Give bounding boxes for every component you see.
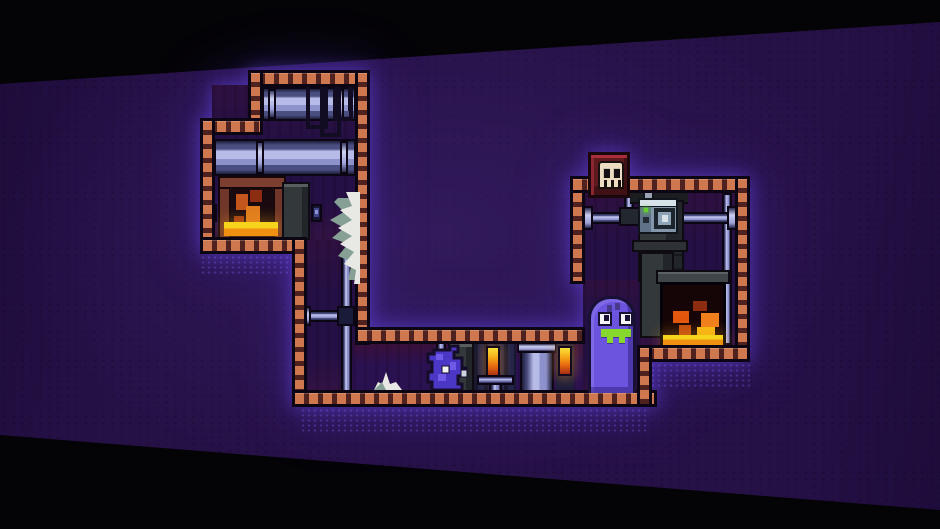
safe-slot <box>643 217 649 223</box>
wall-left-lower <box>200 118 215 254</box>
ghost-enemy <box>588 296 636 393</box>
pipe-coupling <box>268 89 276 119</box>
pipe-coupling <box>340 141 348 174</box>
candle <box>486 346 500 378</box>
critter-enemy <box>424 344 468 392</box>
flame <box>246 206 260 222</box>
skull-eye <box>603 168 610 178</box>
flame <box>250 190 262 202</box>
flame <box>701 313 719 327</box>
flame <box>679 325 691 335</box>
stone-chimney-block <box>282 182 310 240</box>
bloom-dither <box>300 408 650 432</box>
skull-block-enemy <box>588 152 630 198</box>
wall-shaft-left <box>292 237 307 407</box>
flame <box>673 311 689 323</box>
safe-dial-icon <box>654 208 675 229</box>
skull-teeth <box>600 180 622 187</box>
safe-led <box>644 208 648 212</box>
safe <box>638 198 678 234</box>
ghost-brow <box>607 305 612 312</box>
bloom-dither <box>200 255 300 275</box>
pipe-vertical <box>520 351 554 392</box>
cobweb-small-icon <box>372 368 404 392</box>
ghost-eye <box>598 312 612 326</box>
firebox <box>660 282 726 345</box>
pipe-coupling <box>256 141 264 174</box>
wall-rightroom-floor <box>637 345 750 362</box>
cobweb-large-icon <box>308 192 360 292</box>
fireplace-right <box>656 270 730 345</box>
skull-eye <box>613 168 620 178</box>
pipe-joint <box>337 306 355 326</box>
ghost-tooth <box>625 329 631 337</box>
safe-top-strip <box>640 200 676 207</box>
skull-face-icon <box>598 161 624 189</box>
flame <box>693 301 707 311</box>
wall-corridor-ceiling <box>355 327 585 344</box>
fireplace-left <box>218 176 286 240</box>
lava-pool <box>663 335 723 345</box>
ghost-eye <box>619 312 633 326</box>
hanging-grate-bar <box>348 87 352 111</box>
game-screenshot: { "scene": { "description": "pixel-art d… <box>0 0 940 529</box>
ghost-brow <box>615 303 620 310</box>
wall-top-left-room <box>248 70 370 87</box>
pipe-lower <box>214 139 356 176</box>
game-canvas[interactable] <box>0 0 940 529</box>
ghost-mouth <box>601 329 631 345</box>
wall-step-right <box>637 345 652 407</box>
chimney-collar <box>632 240 688 252</box>
candle <box>558 346 572 376</box>
wall-rightroom-right <box>735 176 750 362</box>
lava-pool <box>224 222 278 236</box>
safe-dial-center <box>662 215 668 222</box>
wall-leftroom-floor <box>200 237 295 254</box>
